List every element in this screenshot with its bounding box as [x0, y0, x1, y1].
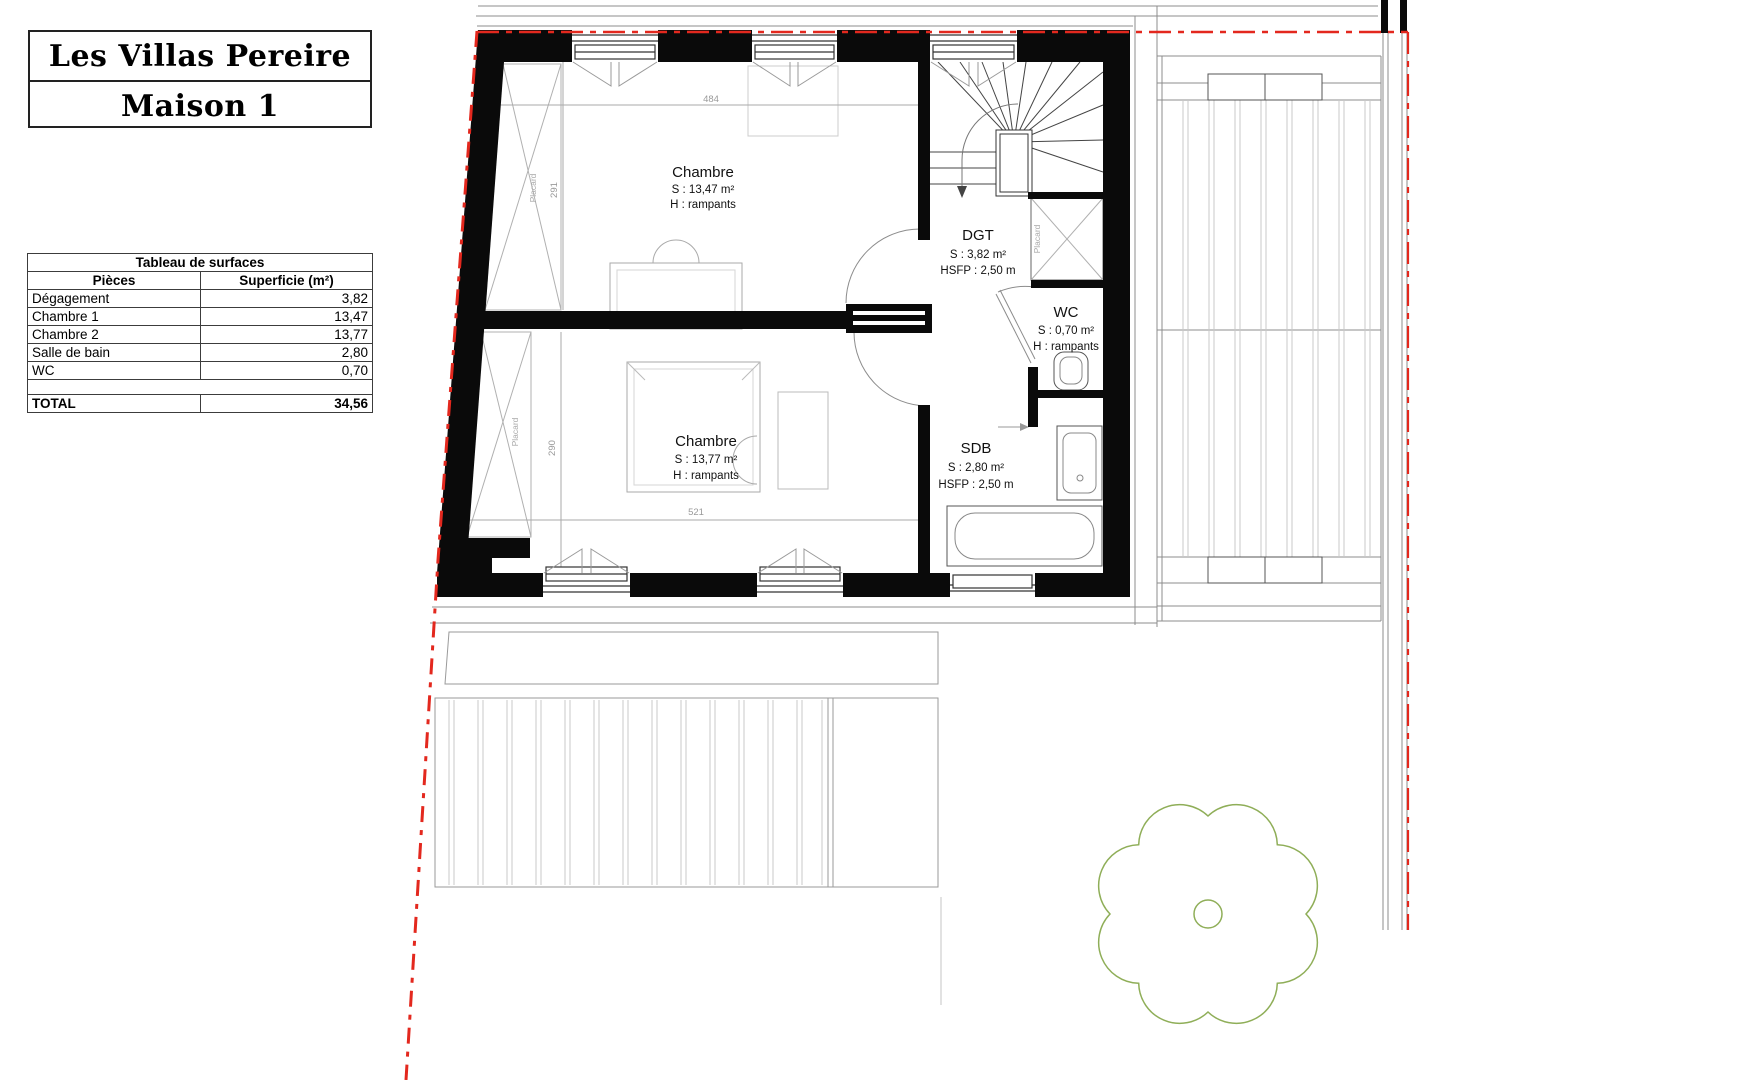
dim-chambre1-depth: 291 — [549, 182, 560, 198]
chambre2-area: S : 13,77 m² — [675, 454, 738, 466]
chambre2-name: Chambre — [675, 433, 737, 450]
dgt-name: DGT — [962, 227, 994, 244]
wall-sdb-left — [918, 405, 930, 573]
chambre1-area: S : 13,47 m² — [672, 184, 735, 196]
deck-planks-lower — [449, 700, 822, 885]
flow-arrow — [1020, 423, 1029, 431]
wc-area: S : 0,70 m² — [1038, 325, 1094, 337]
chambre1-height: H : rampants — [670, 199, 736, 211]
wc-name: WC — [1054, 304, 1079, 321]
chambre1-name: Chambre — [672, 164, 734, 181]
wall-notch — [464, 538, 530, 558]
wall-right — [1103, 30, 1130, 597]
wall-stair-left — [918, 62, 930, 240]
bathtub — [947, 506, 1102, 566]
wardrobe-chambre1 — [748, 66, 838, 136]
stair-direction-arrow — [957, 186, 967, 198]
dgt-area: S : 3,82 m² — [950, 249, 1006, 261]
door-leaf-wc — [996, 294, 1031, 363]
sdb-area: S : 2,80 m² — [948, 462, 1004, 474]
desk-chambre2 — [778, 392, 828, 489]
dim-chambre2-width: 521 — [688, 507, 704, 518]
dim-chambre2-depth: 290 — [547, 440, 558, 456]
wc-height: H : rampants — [1033, 341, 1099, 353]
wall-chambre-divider — [484, 311, 850, 329]
sdb-height: HSFP : 2,50 m — [938, 479, 1013, 491]
floor-plan-canvas: 484 521 291 290 Placard Placard Placard … — [0, 0, 1761, 1080]
terrace-upper — [1157, 56, 1381, 621]
dim-chambre1-width: 484 — [703, 94, 719, 105]
door-arc-dgt — [846, 229, 920, 303]
walls — [437, 30, 1130, 597]
terrace-lower — [435, 632, 941, 1005]
placard-label-chambre1: Placard — [528, 173, 538, 202]
chambre2-height: H : rampants — [673, 470, 739, 482]
bed1-headboard — [653, 240, 699, 263]
neighbour-wall — [1381, 0, 1407, 930]
door-arc-sdb — [854, 332, 928, 406]
dgt-height: HSFP : 2,50 m — [940, 265, 1015, 277]
sliding-door — [846, 304, 932, 333]
staircase — [930, 62, 1103, 198]
deck-planks — [1183, 100, 1370, 557]
placard-label-dgt: Placard — [1032, 224, 1042, 253]
floor-plan-sheet: Les Villas Pereire Maison 1 Tableau de s… — [0, 0, 1761, 1080]
sdb-name: SDB — [961, 440, 992, 457]
placard-label-chambre2: Placard — [510, 417, 520, 446]
tree-symbol — [1099, 805, 1318, 1024]
